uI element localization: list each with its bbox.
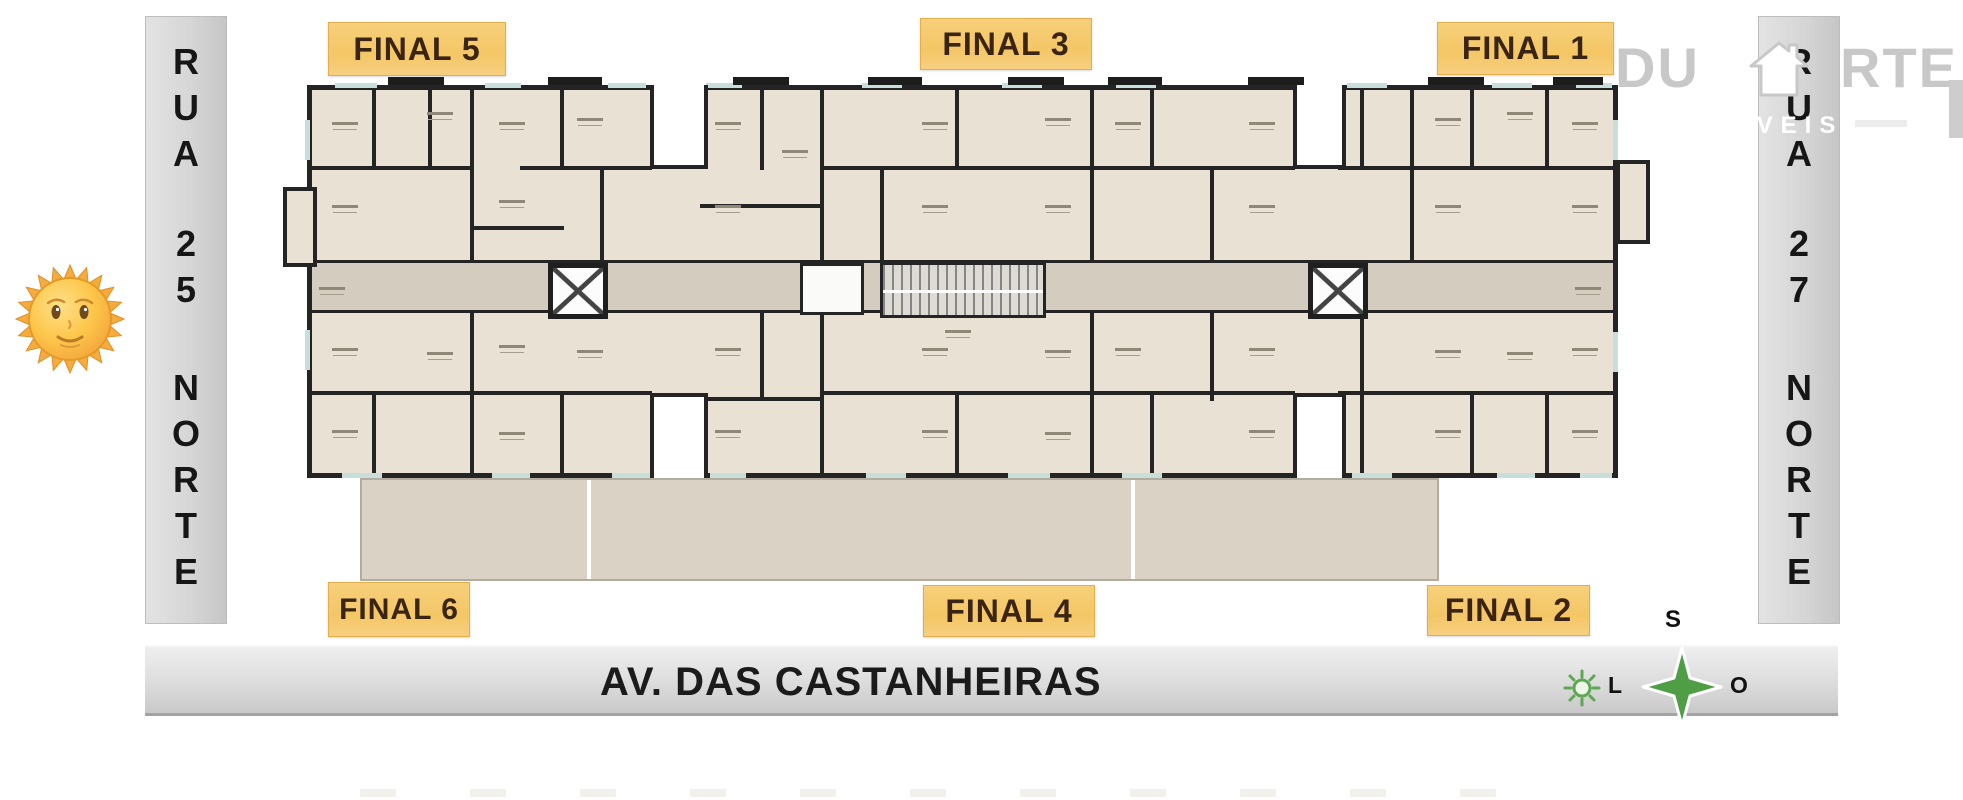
street-name-segment: RUA <box>173 39 199 177</box>
ghost-mark <box>910 789 946 797</box>
wall-segment <box>372 90 376 170</box>
wall-segment <box>955 90 959 170</box>
unit-label-final-2: FINAL 2 <box>1427 585 1590 636</box>
parapet-tick <box>1248 77 1304 85</box>
wall-segment <box>372 395 376 475</box>
street-name-segment: 25 <box>176 221 196 313</box>
unit-label-final-1: FINAL 1 <box>1437 22 1614 75</box>
parapet-tick <box>1428 77 1484 85</box>
watermark-duarte-suffix: RTE <box>1840 42 1958 94</box>
street-bar-rua-25-norte: RUA25NORTE <box>145 16 227 624</box>
window-segment <box>335 83 377 88</box>
terrace-divider <box>587 480 591 579</box>
room-label-smudge <box>1435 430 1461 433</box>
wall-segment <box>1150 90 1154 170</box>
street-letter: T <box>175 503 197 549</box>
street-name-segment: 27 <box>1789 221 1809 313</box>
room-label-smudge <box>1435 205 1461 208</box>
elevator-icon <box>1308 263 1368 319</box>
watermark-moveis: MÓVEIS <box>1702 112 1843 140</box>
elevator-icon <box>548 263 608 319</box>
wall-segment <box>1092 166 1295 170</box>
staircase <box>880 262 1046 318</box>
parapet-tick <box>868 77 922 85</box>
avenue-name: AV. DAS CASTANHEIRAS <box>600 660 1102 705</box>
room-label-smudge <box>499 345 525 348</box>
room-label-smudge <box>715 205 741 208</box>
window-segment <box>1613 332 1618 372</box>
wall-segment <box>560 395 564 475</box>
parapet-tick <box>1108 77 1162 85</box>
room-label-smudge <box>782 150 808 153</box>
window-segment <box>1613 120 1618 160</box>
wall-segment <box>1545 90 1549 170</box>
wall-segment <box>307 166 472 170</box>
room-label-smudge <box>577 118 603 121</box>
parapet-tick <box>388 77 444 85</box>
room-label-smudge <box>1045 118 1071 121</box>
wall-segment <box>1150 395 1154 475</box>
ghost-mark <box>1020 789 1056 797</box>
street-letter: 2 <box>1789 221 1809 267</box>
wall-segment <box>1470 395 1474 475</box>
ghost-mark <box>1240 789 1276 797</box>
wall-segment <box>1360 90 1364 170</box>
wall-segment <box>428 90 432 170</box>
room-label-smudge <box>499 122 525 125</box>
street-letter: N <box>1786 365 1812 411</box>
street-letter: A <box>173 131 199 177</box>
room-label-smudge <box>1115 122 1141 125</box>
floorplan-canvas: RUA25NORTE RUA27NORTE AV. DAS CASTANHEIR… <box>0 0 1963 800</box>
ghost-mark <box>470 789 506 797</box>
window-segment <box>1492 83 1532 88</box>
street-letter: T <box>1788 503 1810 549</box>
room-label-smudge <box>922 348 948 351</box>
street-bar-rua-27-norte: RUA27NORTE <box>1758 16 1840 624</box>
window-segment <box>305 120 310 160</box>
room-label-smudge <box>1435 118 1461 121</box>
street-letter: R <box>173 39 199 85</box>
room-label-smudge <box>1572 430 1598 433</box>
ghost-mark <box>690 789 726 797</box>
compass-star-icon <box>1640 645 1724 729</box>
room-label-smudge <box>1575 287 1601 290</box>
wall-segment <box>470 90 474 262</box>
compass-east-label: L <box>1608 672 1622 699</box>
room-label-smudge <box>1045 205 1071 208</box>
parapet-tick <box>1553 77 1603 85</box>
ghost-mark <box>1130 789 1166 797</box>
ghost-mark <box>580 789 616 797</box>
room-label-smudge <box>332 430 358 433</box>
wall-segment <box>880 166 884 262</box>
wall-segment <box>820 90 824 262</box>
terrace-divider <box>1131 480 1135 579</box>
room-label-smudge <box>1249 430 1275 433</box>
wall-segment <box>1338 391 1618 395</box>
room-label-smudge <box>332 348 358 351</box>
room-label-smudge <box>715 348 741 351</box>
street-name-segment: NORTE <box>1785 365 1813 595</box>
wall-segment <box>1410 90 1414 262</box>
wall-segment <box>560 90 564 170</box>
compass-sun-icon <box>1562 668 1602 708</box>
room-label-smudge <box>1045 350 1071 353</box>
room-label-smudge <box>499 200 525 203</box>
light-well <box>650 85 708 169</box>
sun-with-face-icon <box>14 262 126 376</box>
terrace <box>360 478 1439 581</box>
window-segment <box>1497 473 1535 478</box>
street-letter: R <box>1786 457 1812 503</box>
room-label-smudge <box>715 430 741 433</box>
light-well <box>1293 393 1346 482</box>
unit-label-final-3: FINAL 3 <box>920 18 1092 70</box>
wall-segment <box>1338 166 1618 170</box>
compass-west-label: O <box>1730 672 1748 699</box>
street-letter: O <box>1785 411 1813 457</box>
wall-segment <box>600 166 604 262</box>
room-label-smudge <box>1572 122 1598 125</box>
room-label-smudge <box>332 205 358 208</box>
watermark-dash <box>1855 120 1907 127</box>
room-label-smudge <box>332 122 358 125</box>
street-letter: U <box>173 85 199 131</box>
wall-segment <box>822 166 1094 170</box>
light-well <box>1293 85 1346 169</box>
wall-segment <box>1210 313 1214 401</box>
wall-segment <box>1210 166 1214 262</box>
room-label-smudge <box>1249 205 1275 208</box>
room-label-smudge <box>577 350 603 353</box>
street-letter: 2 <box>176 221 196 267</box>
street-letter: N <box>173 365 199 411</box>
wall-segment <box>307 391 472 395</box>
light-well <box>650 393 708 482</box>
wall-segment <box>1090 90 1094 262</box>
ghost-mark <box>800 789 836 797</box>
street-letter: 7 <box>1789 267 1809 313</box>
street-letter: R <box>173 457 199 503</box>
watermark-house-icon <box>1748 40 1810 98</box>
room-label-smudge <box>1507 352 1533 355</box>
room-label-smudge <box>499 432 525 435</box>
wall-segment <box>822 391 1094 395</box>
room-label-smudge <box>945 330 971 333</box>
room-label-smudge <box>1249 122 1275 125</box>
wall-segment <box>700 397 824 401</box>
window-segment <box>305 330 310 370</box>
room-label-smudge <box>1507 112 1533 115</box>
room-label-smudge <box>427 352 453 355</box>
parapet-tick <box>1008 77 1064 85</box>
street-letter: E <box>174 549 198 595</box>
wall-segment <box>1470 90 1474 170</box>
wall-segment <box>760 90 764 170</box>
parapet-tick <box>548 77 602 85</box>
window-segment <box>1347 83 1387 88</box>
street-name-segment: NORTE <box>172 365 200 595</box>
balcony <box>283 187 317 267</box>
wall-segment <box>1092 391 1295 395</box>
balcony <box>1616 160 1650 244</box>
wall-segment <box>1545 395 1549 475</box>
window-segment <box>1580 473 1612 478</box>
room-label-smudge <box>1572 348 1598 351</box>
room-label-smudge <box>319 287 345 290</box>
ghost-mark <box>360 789 396 797</box>
ghost-mark <box>1350 789 1386 797</box>
room-label-smudge <box>715 122 741 125</box>
street-letter: E <box>1787 549 1811 595</box>
wall-segment <box>470 226 564 230</box>
watermark-duarte-prefix: DU <box>1615 42 1700 94</box>
room-label-smudge <box>1249 348 1275 351</box>
room-label-smudge <box>1572 205 1598 208</box>
room-label-smudge <box>922 205 948 208</box>
ghost-mark <box>1460 789 1496 797</box>
unit-label-final-6: FINAL 6 <box>328 582 470 637</box>
room-label-smudge <box>1435 350 1461 353</box>
window-segment <box>485 83 521 88</box>
unit-label-final-4: FINAL 4 <box>923 585 1095 637</box>
wall-segment <box>520 166 652 170</box>
room-label-smudge <box>922 122 948 125</box>
room-label-smudge <box>1045 432 1071 435</box>
street-letter: 5 <box>176 267 196 313</box>
street-letter: O <box>172 411 200 457</box>
parapet-tick <box>733 77 789 85</box>
room-label-smudge <box>922 430 948 433</box>
window-segment <box>608 83 646 88</box>
compass-south-label: S <box>1665 606 1681 634</box>
room-label-smudge <box>427 112 453 115</box>
unit-label-final-5: FINAL 5 <box>328 22 506 76</box>
watermark-fragment <box>1949 80 1963 138</box>
stair-lobby <box>800 263 864 315</box>
room-label-smudge <box>1115 348 1141 351</box>
wall-segment <box>760 313 764 401</box>
wall-segment <box>472 391 652 395</box>
wall-segment <box>955 395 959 475</box>
